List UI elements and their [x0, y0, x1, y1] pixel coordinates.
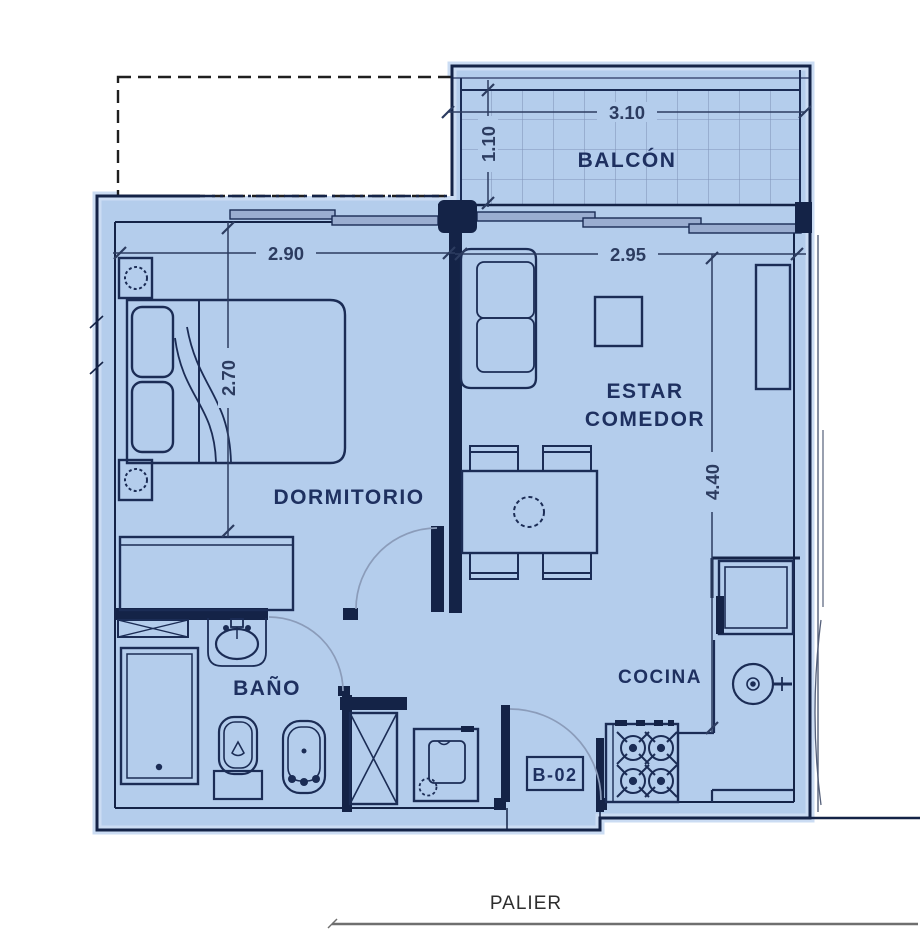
kitchen-label: COCINA [618, 667, 702, 688]
dim-bedroom-depth-value: 2.70 [218, 360, 239, 396]
balcony-label: BALCÓN [578, 148, 677, 172]
unit-tag: B-02 [527, 757, 583, 790]
column [795, 202, 812, 233]
burner-icon [645, 765, 677, 797]
bathroom-label: BAÑO [233, 677, 301, 700]
living-label-line1: ESTAR [606, 380, 683, 403]
unit-tag-label: B-02 [532, 765, 577, 785]
column [438, 200, 477, 233]
burner-icon [617, 765, 649, 797]
bedroom-label: DORMITORIO [273, 486, 424, 509]
floor-plan-page: BALCÓN [0, 0, 924, 950]
living-label-line2: COMEDOR [585, 408, 705, 431]
burner-icon [617, 732, 649, 764]
dim-balcony-depth-value: 1.10 [478, 126, 499, 162]
dim-living-width-value: 2.95 [610, 244, 646, 265]
dim-bedroom-width-value: 2.90 [268, 243, 304, 264]
shower-drain [156, 764, 162, 770]
floor-plan-drawing: BALCÓN [0, 0, 924, 950]
landing-label: PALIER [490, 893, 562, 914]
landing: PALIER [328, 893, 918, 928]
burner-icon [645, 732, 677, 764]
dining-table [462, 471, 597, 553]
dim-balcony-width-value: 3.10 [609, 102, 645, 123]
adjacent-structure-lines [815, 235, 823, 812]
dim-living-depth-value: 4.40 [702, 464, 723, 500]
projection-dashed-outline [118, 77, 452, 196]
